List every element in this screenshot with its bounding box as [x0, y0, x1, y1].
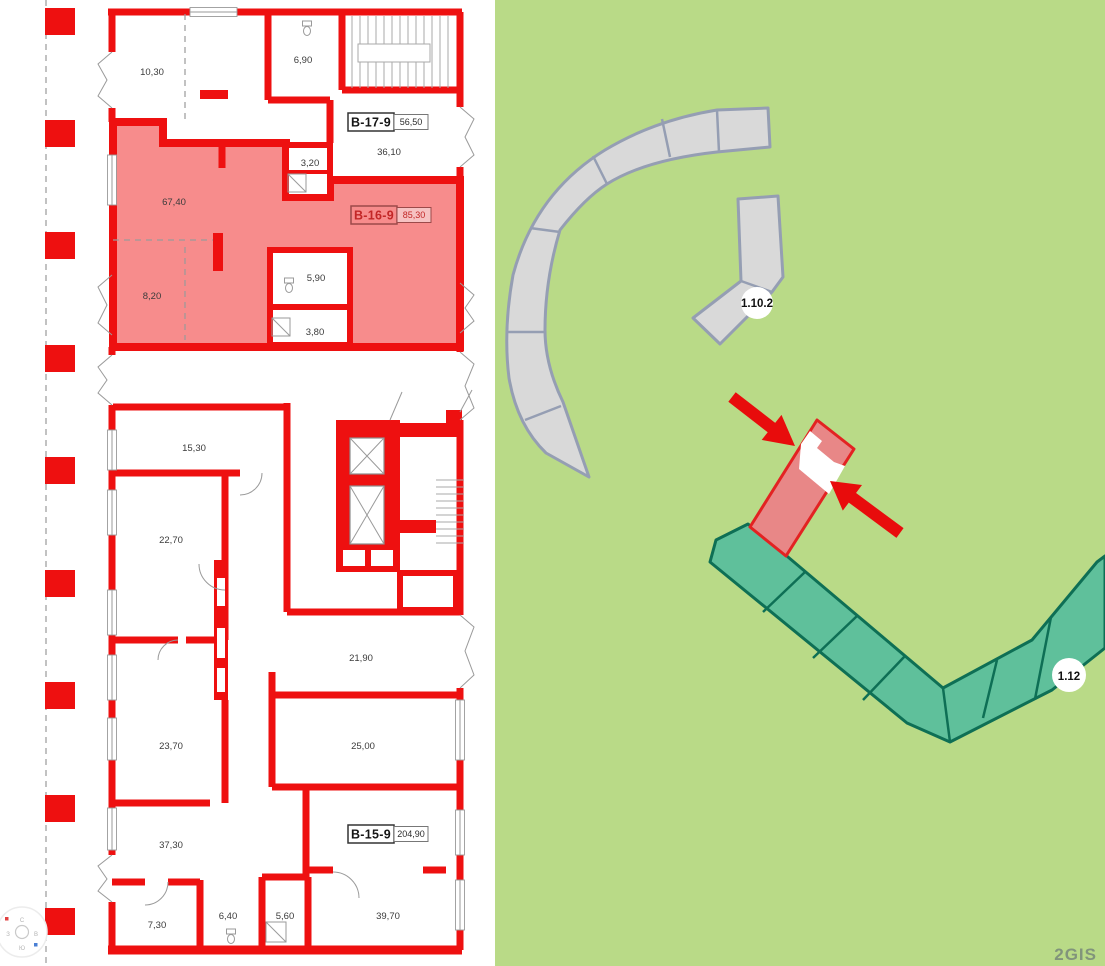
room-area-label: 37,30: [159, 840, 183, 851]
floor-plan-svg: 10,30 6,90 36,10 3,20 67,40 5,90 8,20 3,…: [0, 0, 495, 966]
closet-wall: [214, 560, 228, 700]
window: [108, 490, 117, 535]
compass-red-mark: [5, 917, 9, 921]
column: [45, 8, 75, 35]
window: [108, 718, 117, 760]
wall-stub: [200, 90, 228, 99]
storage-room: [400, 573, 456, 610]
bay-window: [460, 615, 474, 688]
screenshot-stage: 10,30 6,90 36,10 3,20 67,40 5,90 8,20 3,…: [0, 0, 1105, 966]
window: [456, 810, 465, 855]
compass-icon: С В Ю З: [0, 907, 47, 957]
badge-1-12[interactable]: 1.12: [1052, 658, 1086, 692]
window: [108, 590, 117, 635]
column: [45, 795, 75, 822]
badge-label: 1.10.2: [741, 298, 773, 310]
room-area-label: 21,90: [349, 653, 373, 664]
stair-landing: [358, 44, 430, 62]
core-niche: [371, 550, 393, 566]
bay-window: [460, 107, 474, 167]
room-area-label: 39,70: [376, 911, 400, 922]
bay-window: [98, 52, 112, 108]
column: [45, 682, 75, 709]
map-watermark: 2GIS: [1054, 945, 1097, 964]
room-area-label: 6,40: [219, 911, 238, 922]
room-area-label: 3,20: [301, 158, 320, 169]
bathroom-3-80: [270, 307, 350, 345]
unit-id: B-17-9: [351, 116, 391, 130]
compass-west: З: [6, 932, 10, 938]
core-wall: [398, 423, 460, 437]
unit-area: 85,30: [403, 210, 426, 220]
unit-id: B-15-9: [351, 828, 391, 842]
column: [45, 570, 75, 597]
structural-columns: [45, 8, 75, 935]
badge-label: 1.12: [1058, 671, 1080, 683]
unit-label-B-17-9[interactable]: B-17-9 56,50: [348, 113, 428, 131]
window: [456, 700, 465, 760]
window: [108, 808, 117, 850]
room-area-label: 5,90: [307, 273, 326, 284]
room-area-label: 15,30: [182, 443, 206, 454]
core-niche: [343, 550, 365, 566]
compass-north: С: [20, 918, 25, 924]
column: [45, 232, 75, 259]
map-svg: 1.10.2 1.12 2GIS: [495, 0, 1105, 966]
window: [108, 430, 117, 470]
niche: [217, 668, 225, 692]
room-area-label: 36,10: [377, 147, 401, 158]
niche: [217, 628, 225, 658]
niche: [217, 578, 225, 606]
bay-window: [460, 352, 474, 420]
unit-label-B-16-9[interactable]: B-16-9 85,30: [351, 206, 431, 224]
room-area-label: 23,70: [159, 741, 183, 752]
unit-area: 204,90: [397, 829, 425, 839]
bay-window: [98, 855, 112, 902]
elevator-core: [336, 410, 462, 610]
door-arc: [333, 872, 359, 898]
room-area-label: 67,40: [162, 197, 186, 208]
unit-label-B-15-9[interactable]: B-15-9 204,90: [348, 825, 428, 843]
room-area-label: 25,00: [351, 741, 375, 752]
window: [190, 8, 237, 17]
room-area-label: 7,30: [148, 920, 167, 931]
room-area-label: 6,90: [294, 55, 313, 66]
window: [108, 655, 117, 700]
compass-blue-mark: [34, 943, 38, 947]
toilet-icon: [303, 21, 312, 36]
unit-id: B-16-9: [354, 209, 394, 223]
toilet-icon: [227, 929, 236, 944]
door-arc: [145, 882, 168, 905]
shower-icon: [266, 922, 286, 942]
core-wall: [398, 520, 436, 533]
column: [45, 457, 75, 484]
window: [456, 880, 465, 930]
badge-1-10-2[interactable]: 1.10.2: [741, 287, 773, 319]
room-area-label: 10,30: [140, 67, 164, 78]
bay-window: [390, 392, 402, 420]
room-area-label: 22,70: [159, 535, 183, 546]
window: [108, 155, 117, 205]
column: [45, 908, 75, 935]
column: [45, 120, 75, 147]
map-panel[interactable]: 1.10.2 1.12 2GIS: [495, 0, 1105, 966]
stairwell-top: [352, 16, 448, 88]
room-area-label: 5,60: [276, 911, 295, 922]
column: [45, 345, 75, 372]
unit-area: 56,50: [400, 117, 423, 127]
door-arc: [240, 473, 262, 495]
compass-south: Ю: [19, 946, 25, 952]
pillar: [213, 233, 223, 271]
bay-window: [460, 390, 472, 412]
room-area-label: 3,80: [306, 327, 325, 338]
room-area-label: 8,20: [143, 291, 162, 302]
core-wall: [446, 410, 462, 423]
compass-east: В: [34, 932, 38, 938]
floor-plan-panel: 10,30 6,90 36,10 3,20 67,40 5,90 8,20 3,…: [0, 0, 495, 966]
bay-window: [98, 355, 112, 405]
